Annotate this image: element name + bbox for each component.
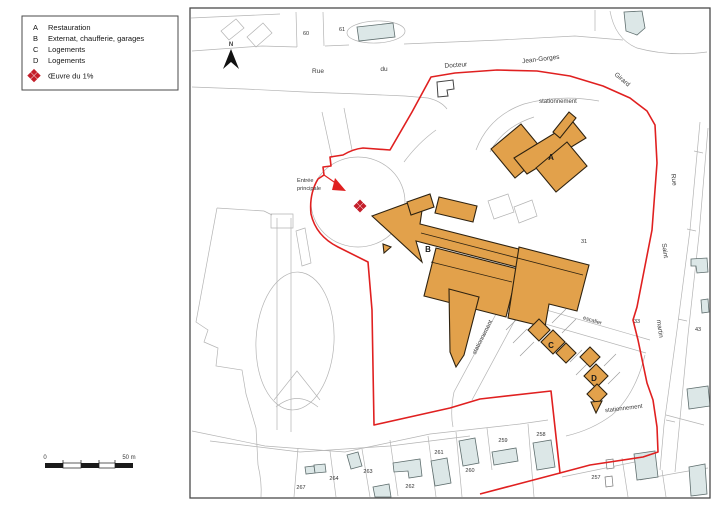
parcel-267: 267 [296,485,305,491]
legend-key-a: A [33,23,38,32]
parcel-31: 31 [581,239,587,245]
building-a-shape [491,112,587,192]
north-arrow: N [223,42,239,69]
legend-key-d: D [33,56,39,65]
parcel-258: 258 [536,432,545,438]
street-martin: martin [655,319,664,338]
parcel-43: 43 [695,327,701,333]
building-c-label: C [548,341,554,350]
building-b-label: B [425,245,431,254]
parcel-259: 259 [498,438,507,444]
north-label: N [229,42,233,48]
parcel-61: 61 [339,27,345,33]
entrance-label-line1: Entrée [297,178,313,184]
parcel-257: 257 [591,475,600,481]
scale-max-label: 50 m [122,455,135,461]
scale-zero-label: 0 [43,455,47,461]
artwork-diamond-icon [354,200,367,213]
street-rue: Rue [312,68,324,75]
legend-key-c: C [33,45,39,54]
entrance-label-line2: principale [297,186,321,192]
parking-label-top: stationnement [539,99,577,105]
north-needle-icon [223,49,239,69]
scale-bar: 0 50 m [43,455,135,468]
parking-label-mid: stationnement [472,319,495,356]
street-du: du [380,66,388,73]
parcel-260: 260 [465,468,474,474]
street-jean-gorges: Jean-Gorges [522,54,561,66]
entrance-arrow-icon [324,175,346,191]
parcel-33: 33 [634,319,640,325]
running-track-oval [252,270,337,412]
building-d-label: D [591,374,597,383]
map-canvas: N Rue du Docteur Jean-Gorges Girard Rue … [191,10,710,497]
legend-label-a: Restauration [48,23,91,32]
building-a-label: A [548,153,554,162]
site-plan-drawing: N Rue du Docteur Jean-Gorges Girard Rue … [0,0,728,515]
site-plan-page: N Rue du Docteur Jean-Gorges Girard Rue … [0,0,728,515]
parcel-262: 262 [405,484,414,490]
legend-label-d: Logements [48,56,85,65]
legend-box: A Restauration B Externat, chaufferie, g… [22,16,178,90]
legend-artwork-label: Œuvre du 1% [48,72,94,81]
parcel-264: 264 [329,476,338,482]
street-docteur: Docteur [444,61,468,70]
legend-label-c: Logements [48,45,85,54]
street-girard: Girard [613,71,632,88]
stairs-label: escalier [582,315,602,326]
street-rue-right: Rue [669,173,678,186]
parcel-261: 261 [434,450,443,456]
street-saint: Saint [660,243,669,259]
parking-label-bottom: stationnement [605,404,643,415]
legend-key-b: B [33,34,38,43]
parcel-60: 60 [303,31,309,37]
legend-label-b: Externat, chaufferie, garages [48,34,144,43]
parcel-263: 263 [363,469,372,475]
